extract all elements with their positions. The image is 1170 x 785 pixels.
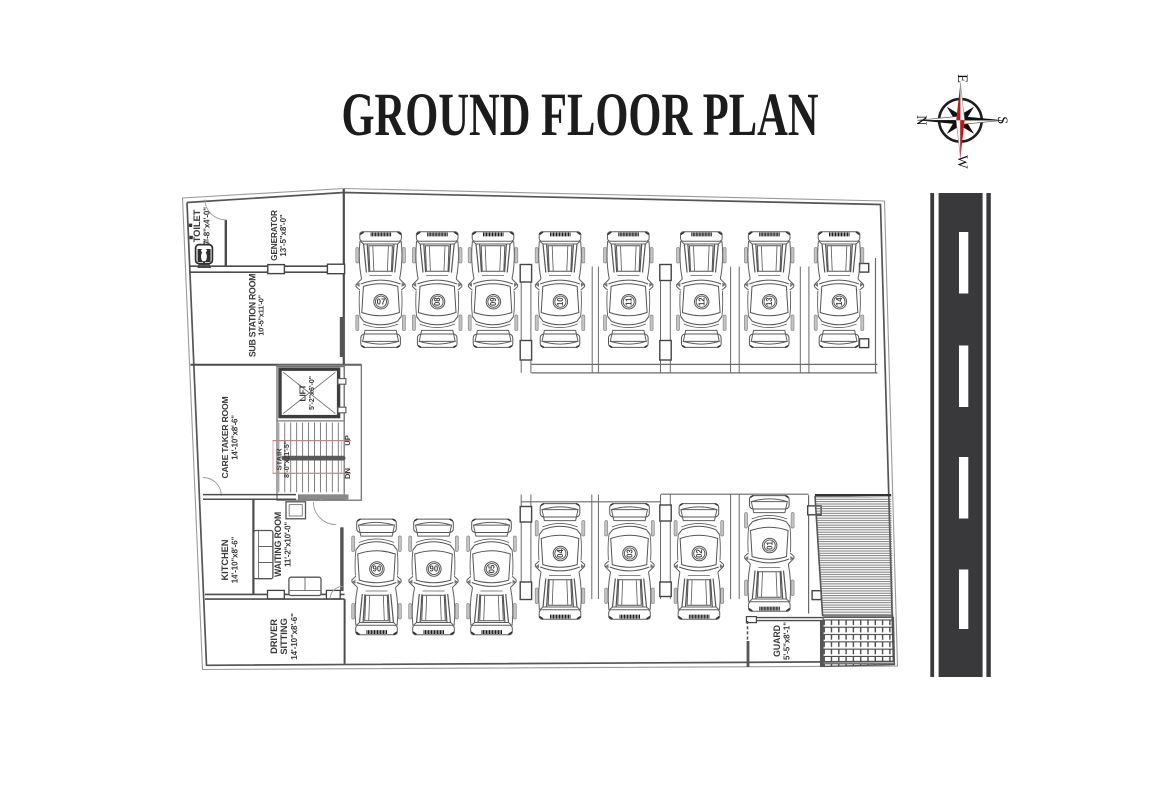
svg-text:5'-5"x8'-1": 5'-5"x8'-1" (783, 622, 792, 660)
svg-text:13: 13 (765, 297, 774, 306)
svg-text:WAITING ROOM: WAITING ROOM (273, 512, 283, 577)
svg-text:90: 90 (373, 565, 382, 574)
svg-text:8'-0"x21'-5": 8'-0"x21'-5" (284, 441, 291, 478)
svg-text:13'-5"x8'-0": 13'-5"x8'-0" (279, 214, 288, 257)
svg-text:02: 02 (695, 549, 704, 558)
svg-text:DN: DN (343, 468, 352, 479)
svg-text:S: S (994, 116, 1010, 124)
svg-text:KITCHEN: KITCHEN (219, 539, 230, 580)
svg-text:14'-10"x8'-6": 14'-10"x8'-6" (231, 415, 240, 460)
svg-text:90: 90 (430, 565, 439, 574)
svg-text:10'-5"x11'-0": 10'-5"x11'-0" (257, 294, 266, 335)
svg-text:14'-10"x8'-6": 14'-10"x8'-6" (231, 536, 240, 583)
svg-text:GROUND FLOOR PLAN: GROUND FLOOR PLAN (342, 82, 819, 149)
svg-text:09: 09 (489, 297, 498, 306)
svg-text:14: 14 (835, 297, 844, 306)
svg-text:STAIR: STAIR (275, 448, 284, 470)
svg-text:W: W (954, 155, 970, 169)
svg-text:11'-2"x10'-0": 11'-2"x10'-0" (284, 522, 293, 567)
svg-text:E: E (954, 74, 970, 83)
svg-text:7'-8"x4'-0": 7'-8"x4'-0" (202, 207, 211, 245)
svg-text:CARE TAKER ROOM: CARE TAKER ROOM (220, 396, 230, 478)
svg-text:GUARD: GUARD (772, 625, 782, 657)
svg-text:11: 11 (624, 297, 633, 306)
svg-text:10: 10 (556, 297, 565, 306)
svg-text:12: 12 (697, 297, 706, 306)
svg-text:5'-2"x6'-0": 5'-2"x6'-0" (307, 376, 316, 410)
svg-text:GENERATOR: GENERATOR (270, 210, 279, 261)
svg-text:07: 07 (377, 297, 386, 306)
svg-text:14'-10"x8'-6": 14'-10"x8'-6" (290, 613, 299, 660)
svg-text:05: 05 (488, 564, 497, 573)
svg-text:N: N (913, 115, 929, 126)
svg-text:01: 01 (765, 541, 774, 550)
svg-text:08: 08 (433, 297, 442, 306)
svg-text:TOILET: TOILET (191, 209, 202, 242)
svg-text:03: 03 (626, 549, 635, 558)
svg-text:SITTING: SITTING (278, 618, 289, 654)
svg-text:04: 04 (556, 549, 565, 558)
svg-text:UP: UP (343, 435, 352, 446)
